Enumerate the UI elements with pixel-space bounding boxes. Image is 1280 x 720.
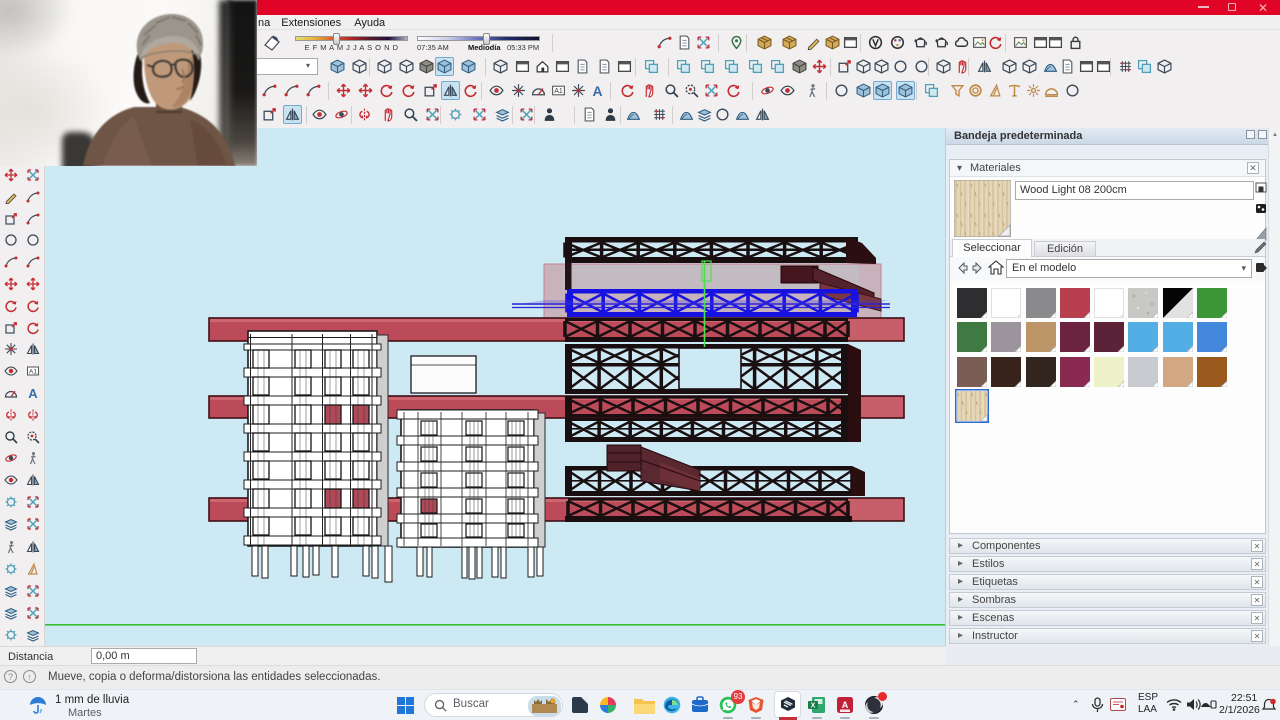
svg-text:A: A <box>842 700 849 710</box>
svg-text:X: X <box>811 703 816 710</box>
